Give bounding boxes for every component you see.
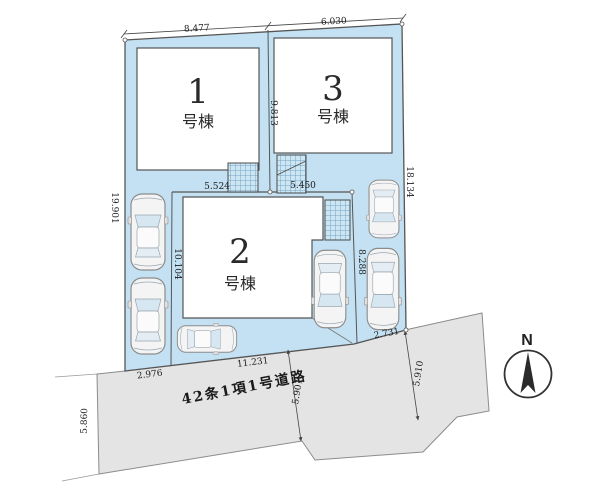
car-topview bbox=[128, 194, 168, 270]
dim-right-edge: 18.134 bbox=[404, 166, 414, 198]
building-2-footprint bbox=[183, 197, 323, 318]
building-3-label: 号棟 bbox=[317, 107, 349, 126]
dim-top-left: 8.477 bbox=[184, 23, 211, 35]
building-1-label: 号棟 bbox=[182, 112, 214, 131]
approach-hatch-lot1 bbox=[228, 163, 258, 192]
car-topview bbox=[366, 180, 401, 238]
site-plan-drawing: 1 号棟 3 号棟 2 号棟 8.477 6.030 9.813 19.901 … bbox=[0, 0, 600, 493]
road-edge-extension-bottom bbox=[62, 474, 99, 481]
building-3-number: 3 bbox=[322, 69, 344, 109]
dim-lot2-left: 10.104 bbox=[172, 248, 182, 280]
compass: N bbox=[505, 332, 552, 398]
building-2-number: 2 bbox=[229, 232, 251, 272]
site-plan: 1 号棟 3 号棟 2 号棟 8.477 6.030 9.813 19.901 … bbox=[0, 0, 600, 493]
building-2-label: 号棟 bbox=[224, 274, 256, 293]
car-topview bbox=[364, 248, 401, 329]
car-topview bbox=[311, 250, 348, 328]
car-topview bbox=[177, 323, 236, 354]
compass-needle-icon bbox=[521, 352, 536, 393]
compass-north-label: N bbox=[521, 332, 533, 349]
dim-lot2-right: 8.288 bbox=[356, 249, 366, 275]
road-edge-extension-top bbox=[55, 374, 97, 377]
dim-between-1-3: 9.813 bbox=[268, 100, 278, 126]
terrace-hatch-lot2 bbox=[325, 200, 350, 240]
building-1-number: 1 bbox=[187, 72, 209, 112]
car-topview bbox=[128, 278, 168, 354]
dim-lot2-top-left: 5.524 bbox=[204, 182, 230, 192]
dim-road-width-left: 5.860 bbox=[80, 408, 90, 434]
dim-left-edge: 19.901 bbox=[109, 192, 119, 224]
dim-top-right: 6.030 bbox=[321, 16, 348, 28]
dim-lot2-top-right: 5.450 bbox=[290, 181, 316, 191]
